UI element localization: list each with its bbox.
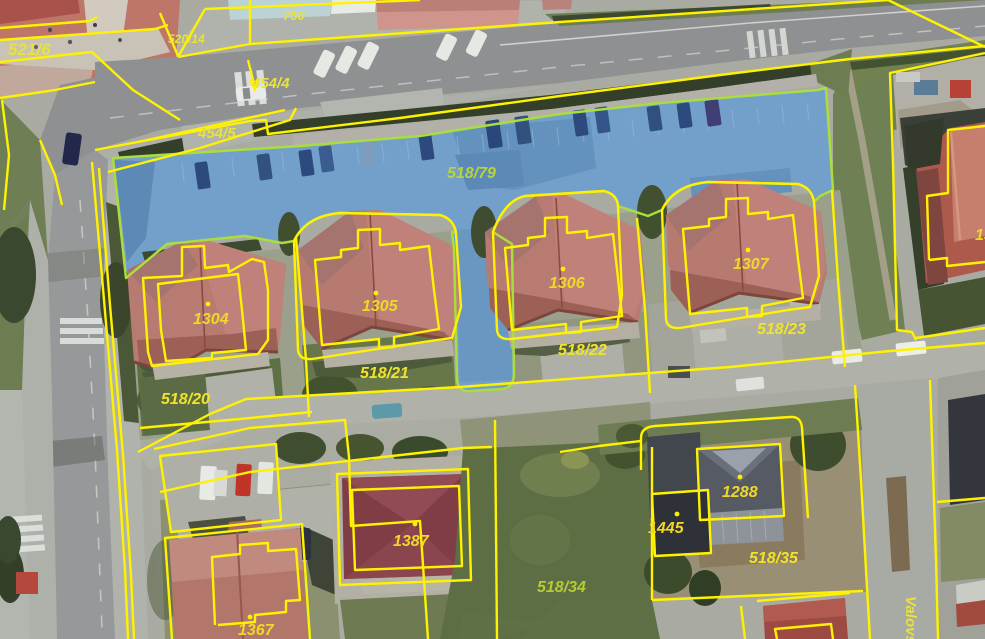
svg-text:454/5: 454/5	[197, 125, 236, 142]
svg-text:518/23: 518/23	[757, 321, 806, 338]
svg-text:1306: 1306	[549, 275, 585, 292]
svg-text:454/4: 454/4	[251, 75, 290, 92]
svg-text:1304: 1304	[193, 311, 229, 328]
svg-text:518/21: 518/21	[360, 365, 409, 382]
svg-text:518/34: 518/34	[537, 579, 586, 596]
svg-text:1288: 1288	[722, 484, 758, 501]
svg-text:1305: 1305	[362, 298, 399, 315]
svg-text:518/20: 518/20	[161, 391, 210, 408]
svg-text:750: 750	[283, 8, 305, 23]
svg-text:1445: 1445	[648, 520, 685, 537]
svg-text:1307: 1307	[733, 256, 770, 273]
svg-text:518/35: 518/35	[749, 550, 799, 567]
svg-text:1387: 1387	[393, 533, 430, 550]
svg-text:518/22: 518/22	[558, 342, 607, 359]
svg-text:520/14: 520/14	[168, 32, 205, 46]
svg-text:521/6: 521/6	[8, 40, 51, 59]
svg-text:Valovská: Valovská	[902, 596, 919, 639]
svg-text:13: 13	[975, 227, 985, 244]
svg-text:518/79: 518/79	[447, 165, 496, 182]
svg-text:1367: 1367	[238, 622, 275, 639]
